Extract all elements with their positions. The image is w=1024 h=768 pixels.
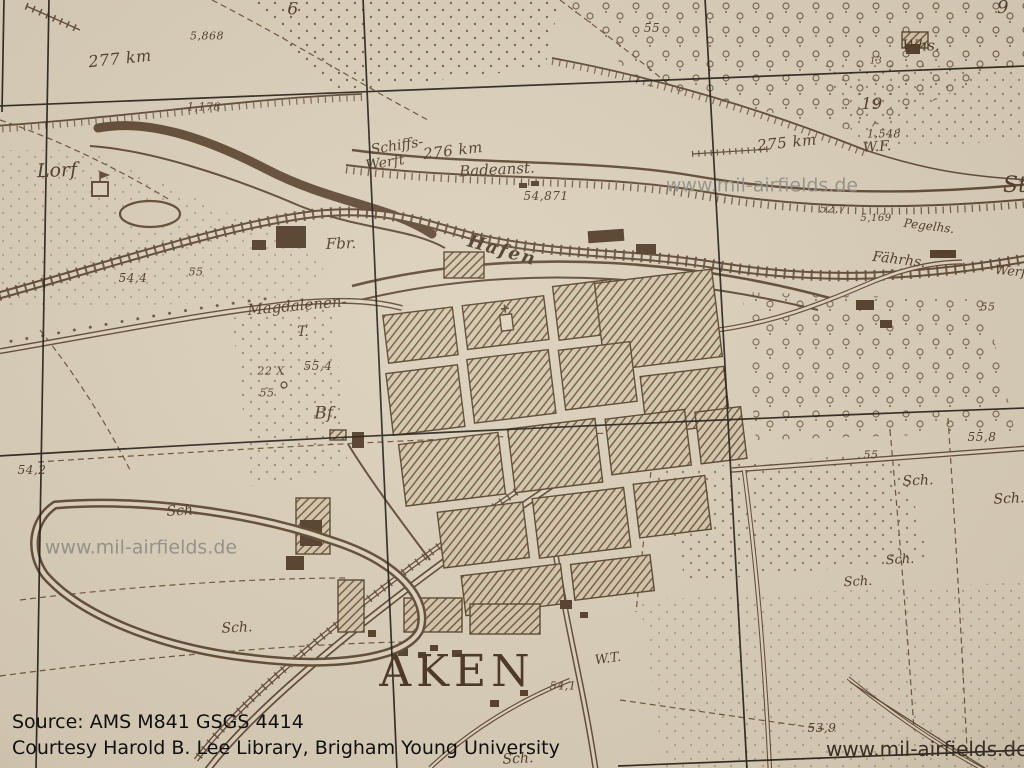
map-label: 55 bbox=[644, 22, 660, 34]
map-label: 55 bbox=[260, 388, 275, 399]
map-label: 1,178 bbox=[187, 102, 221, 113]
label-hafen: Hafen bbox=[465, 233, 538, 270]
map-label: T. bbox=[297, 325, 309, 339]
map-label: 1,548 bbox=[867, 129, 901, 140]
map-label: Pegelhs. bbox=[903, 217, 955, 235]
map-label: 54,871 bbox=[524, 190, 569, 202]
label-bahnhof: Bf. bbox=[314, 406, 338, 423]
map-label: St bbox=[1003, 175, 1024, 197]
map-label: W.F. bbox=[862, 139, 891, 155]
map-label: Fährhs. bbox=[872, 250, 927, 270]
map-label: Fbr. bbox=[326, 236, 357, 252]
courtesy-caption: Courtesy Harold B. Lee Library, Brigham … bbox=[12, 737, 560, 760]
map-label: 55 bbox=[864, 450, 879, 461]
source-caption: Source: AMS M841 GSGS 4414 bbox=[12, 711, 304, 734]
map-label: 6 bbox=[287, 2, 298, 19]
map-label: 5,169 bbox=[860, 214, 891, 224]
map-label: 275 km bbox=[757, 132, 818, 153]
map-label: 54,4 bbox=[119, 272, 148, 284]
map-label: 55 bbox=[981, 302, 996, 313]
map-label: Sch. bbox=[885, 553, 914, 567]
place-lorf: Lorf bbox=[37, 161, 78, 181]
map-label: Whs. bbox=[902, 39, 940, 54]
map-label: 277 km bbox=[88, 48, 153, 71]
map-label: 5,868 bbox=[190, 31, 224, 42]
map-label: Werft bbox=[365, 153, 406, 173]
map-label: 54,1 bbox=[550, 681, 577, 692]
website-caption[interactable]: www.mil-airfields.de bbox=[826, 737, 1024, 761]
map-label: Sch. bbox=[166, 503, 198, 519]
map-label: 55 bbox=[189, 267, 204, 278]
map-label: Sch. bbox=[221, 620, 253, 636]
watermark-text: www.mil-airfields.de bbox=[45, 539, 237, 558]
map-label: Magdalenen- bbox=[247, 294, 347, 318]
town-name-aken: AKEN bbox=[379, 650, 534, 694]
map-label: 19 bbox=[861, 96, 882, 112]
map-stage: AKENLorfSchiffs-Werft276 kmBadeanst.Hafe… bbox=[0, 0, 1024, 768]
map-label: 53,9 bbox=[808, 722, 837, 734]
map-label: 55,8 bbox=[968, 431, 997, 443]
map-label: 54,2 bbox=[18, 464, 47, 476]
map-label: Werft bbox=[994, 264, 1024, 280]
watermark-text: www.mil-airfields.de bbox=[666, 177, 858, 196]
map-label: 55,4 bbox=[304, 360, 333, 372]
map-label: 13 bbox=[870, 58, 882, 67]
map-label: 52,7 bbox=[820, 204, 847, 215]
map-label: Sch. bbox=[843, 575, 872, 589]
map-label: Sch. bbox=[993, 491, 1024, 507]
label-layer: AKENLorfSchiffs-Werft276 kmBadeanst.Hafe… bbox=[0, 0, 1024, 768]
map-label: 22 X bbox=[257, 366, 284, 377]
map-label: Sch. bbox=[902, 473, 934, 489]
map-label: 276 km bbox=[422, 140, 483, 162]
map-label: W.T. bbox=[594, 651, 622, 668]
map-label: Badeanst. bbox=[459, 161, 535, 180]
map-label: 9 bbox=[997, 0, 1009, 17]
